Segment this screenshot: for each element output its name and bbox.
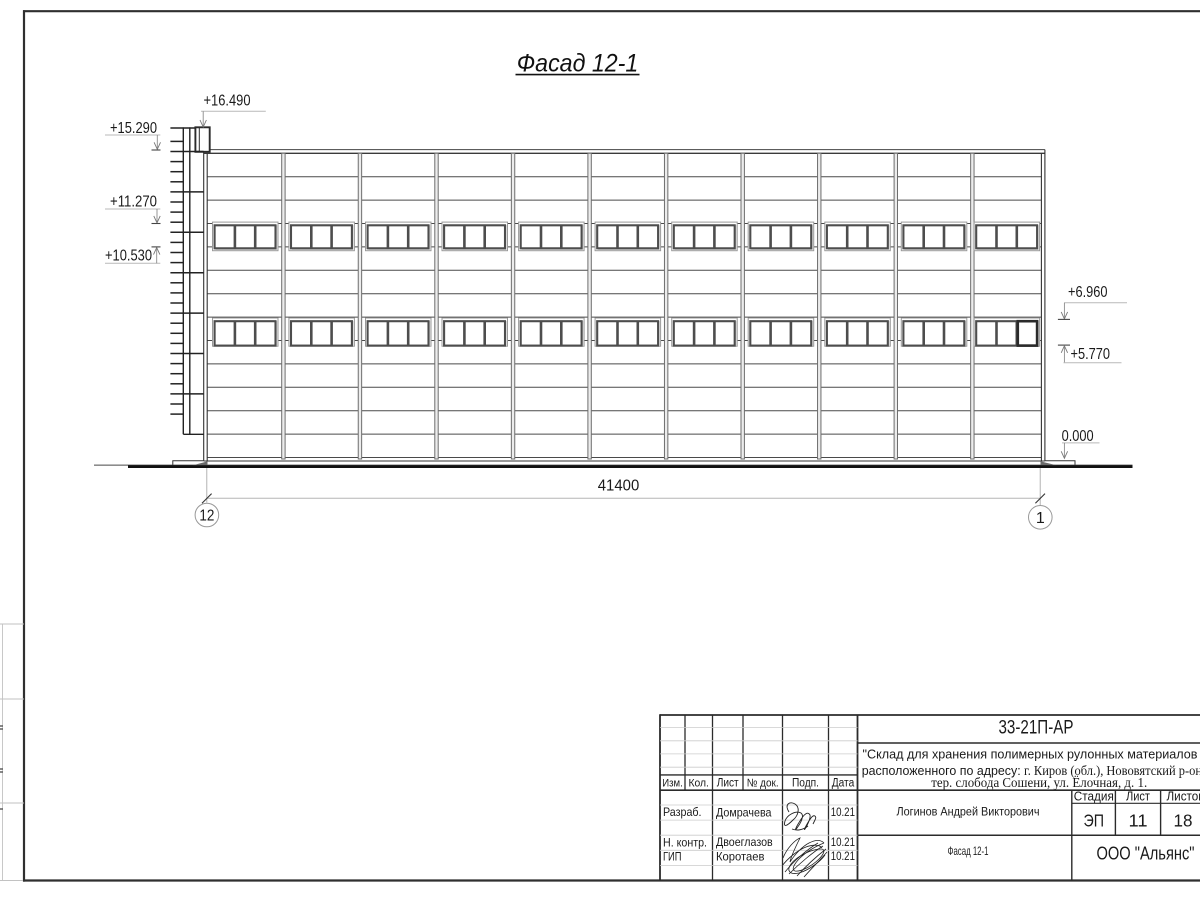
svg-text:+6.960: +6.960	[1068, 284, 1108, 301]
svg-text:33-21П-АР: 33-21П-АР	[999, 717, 1074, 739]
svg-text:Стадия: Стадия	[1074, 789, 1114, 803]
svg-text:Кол.: Кол.	[688, 778, 709, 790]
svg-text:Подп.: Подп.	[792, 778, 819, 790]
svg-text:+10.530: +10.530	[105, 247, 152, 264]
svg-text:Дата: Дата	[832, 778, 855, 790]
svg-text:ООО "Альянс": ООО "Альянс"	[1097, 844, 1195, 864]
svg-text:Изм.: Изм.	[662, 778, 683, 790]
svg-text:+5.770: +5.770	[1071, 346, 1111, 363]
svg-text:тер. слобода Сошени, ул. Ёлочн: тер. слобода Сошени, ул. Ёлочная, д. 1.	[931, 775, 1147, 790]
svg-text:"Склад для хранения полимерных: "Склад для хранения полимерных рулонных …	[863, 746, 1198, 761]
svg-text:0.000: 0.000	[1062, 428, 1094, 445]
svg-text:10.21: 10.21	[831, 837, 855, 849]
svg-text:Логинов Андрей Викторович: Логинов Андрей Викторович	[897, 805, 1040, 819]
svg-text:10.21: 10.21	[831, 851, 855, 863]
svg-text:Разраб.: Разраб.	[663, 805, 702, 819]
svg-text:ГИП: ГИП	[663, 850, 682, 864]
svg-text:Фасад 12-1: Фасад 12-1	[517, 50, 639, 78]
svg-text:41400: 41400	[598, 478, 640, 495]
svg-text:Листов: Листов	[1167, 789, 1200, 803]
svg-text:18: 18	[1174, 811, 1193, 831]
svg-text:Коротаев: Коротаев	[716, 850, 765, 864]
svg-text:+15.290: +15.290	[110, 120, 157, 137]
svg-text:Домрачева: Домрачева	[716, 806, 772, 820]
svg-text:Н. контр.: Н. контр.	[663, 836, 707, 850]
svg-text:ЭП: ЭП	[1084, 811, 1105, 831]
svg-text:Двоеглазов: Двоеглазов	[716, 835, 773, 849]
svg-text:№ док.: № док.	[747, 778, 779, 790]
svg-text:+16.490: +16.490	[204, 93, 251, 110]
svg-text:Фасад 12-1: Фасад 12-1	[948, 844, 989, 858]
svg-text:+11.270: +11.270	[110, 194, 157, 211]
svg-text:Лист: Лист	[1126, 789, 1150, 803]
svg-text:1: 1	[1036, 510, 1045, 527]
svg-text:11: 11	[1129, 811, 1148, 831]
svg-text:12: 12	[199, 508, 214, 525]
svg-text:10.21: 10.21	[831, 807, 855, 819]
svg-text:Лист: Лист	[717, 778, 740, 790]
